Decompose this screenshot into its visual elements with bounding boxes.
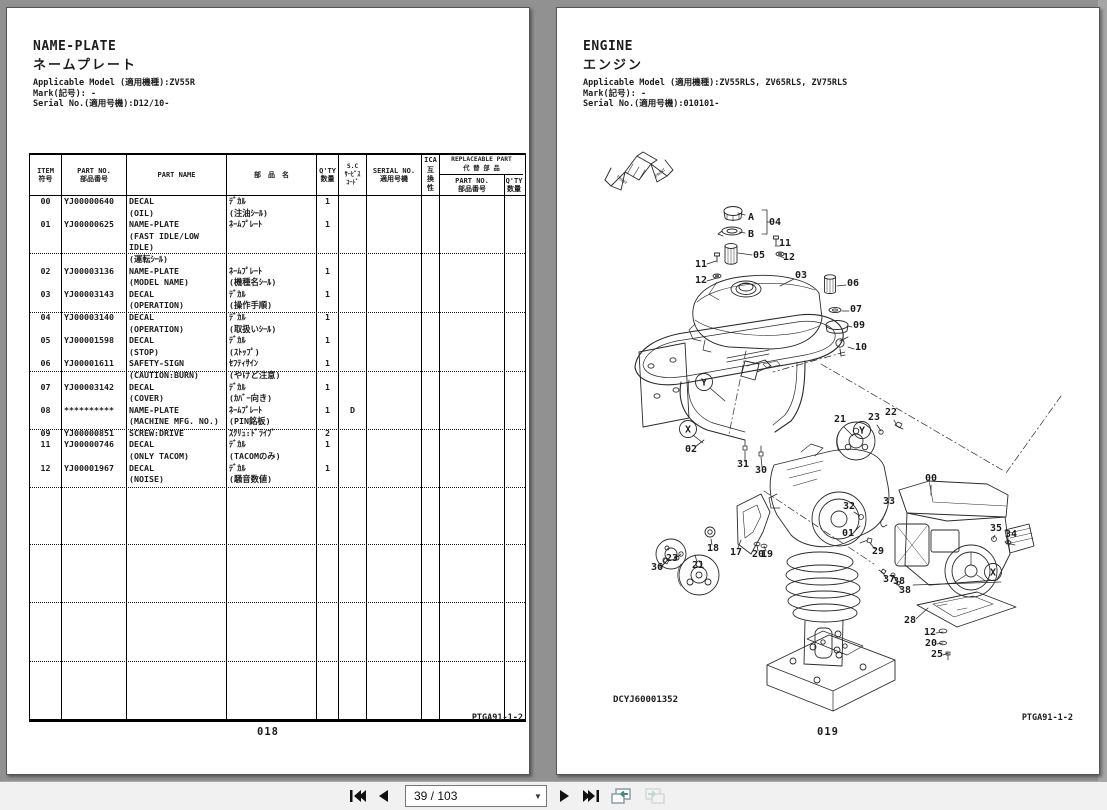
navigate-forward-button[interactable] bbox=[642, 786, 668, 806]
part-number-label: 29 bbox=[872, 546, 884, 557]
pdf-viewer-window: { "left_page": { "title_en": "NAME-PLATE… bbox=[0, 0, 1107, 809]
navigate-back-button[interactable] bbox=[608, 786, 634, 806]
part-number-label: 12 bbox=[783, 252, 795, 263]
table-row: 03YJ00003143DECAL (OPERATION)ﾃﾞｶﾙ (操作手順)… bbox=[30, 289, 525, 312]
next-page-button[interactable] bbox=[552, 786, 578, 806]
page-number: 018 bbox=[7, 726, 529, 738]
page-title-jp: ネームプレート bbox=[33, 54, 137, 73]
applicable-model-block: Applicable Model (適用機種):ZV55RLS, ZV65RLS… bbox=[583, 78, 847, 110]
first-page-button[interactable] bbox=[345, 786, 371, 806]
col-sc: S.C ｻｰﾋﾞｽ ｺｰﾄﾞ bbox=[339, 155, 367, 195]
part-number-label: 03 bbox=[795, 270, 807, 281]
circled-letter-x: X bbox=[985, 564, 1002, 581]
page-number-combobox[interactable]: 39 / 103 ▼ bbox=[405, 785, 547, 807]
coupling-right-shape bbox=[836, 422, 875, 460]
part-number-label: 10 bbox=[855, 342, 867, 353]
col-repl-part-no: PART NO. 部品番号 bbox=[440, 175, 505, 195]
document-canvas: NAME-PLATE ネームプレート Applicable Model (適用機… bbox=[0, 0, 1107, 781]
part-number-label: 18 bbox=[707, 543, 719, 554]
part-number-label: 12 bbox=[924, 627, 936, 638]
part-number-label: 06 bbox=[847, 278, 859, 289]
svg-text:Y: Y bbox=[859, 426, 865, 437]
part-number-label: 09 bbox=[853, 320, 865, 331]
part-number-label: 04 bbox=[769, 217, 781, 228]
page-title: ENGINE bbox=[583, 39, 633, 54]
part-number-label: 00 bbox=[925, 473, 937, 484]
page-number: 019 bbox=[557, 726, 1099, 738]
part-number-label: 05 bbox=[753, 250, 765, 261]
part-number-label: 30 bbox=[755, 465, 767, 476]
part-number-label: 23 bbox=[868, 412, 880, 423]
part-number-label: 32 bbox=[843, 501, 855, 512]
part-number-label: 17 bbox=[730, 547, 742, 558]
viewer-toolbar: 39 / 103 ▼ bbox=[0, 781, 1107, 810]
part-number-label: 11 bbox=[779, 238, 791, 249]
fastener-shapes bbox=[660, 422, 1015, 660]
circled-letter-x: X bbox=[680, 421, 697, 438]
col-ica: ICA 互 換 性 bbox=[422, 155, 440, 195]
skid-plate-shape bbox=[917, 592, 1016, 627]
part-number-label: 38 bbox=[899, 585, 911, 596]
page-title: NAME-PLATE bbox=[33, 39, 116, 54]
doc-code: PTGA91-1-2 bbox=[472, 713, 523, 723]
part-number-label: 11 bbox=[695, 259, 707, 270]
page-018: NAME-PLATE ネームプレート Applicable Model (適用機… bbox=[6, 7, 530, 775]
svg-text:Y: Y bbox=[701, 378, 707, 389]
part-number-label: 25 bbox=[931, 649, 943, 660]
table-row: 00YJ00000640DECAL (OIL)ﾃﾞｶﾙ (注油ｼｰﾙ)1 bbox=[30, 196, 525, 219]
part-number-label: B bbox=[748, 229, 754, 240]
table-row: 02YJ00003136NAME-PLATE (MODEL NAME)ﾈｰﾑﾌﾟ… bbox=[30, 266, 525, 289]
fuel-filter-cock-shapes bbox=[825, 275, 849, 356]
table-row: 04YJ00003140DECAL (OPERATION)ﾃﾞｶﾙ (取扱いｼｰ… bbox=[30, 312, 525, 335]
table-row: 08**********NAME-PLATE (MACHINE MFG. NO.… bbox=[30, 405, 525, 428]
col-serial-no: SERIAL NO. 適用号機 bbox=[367, 155, 422, 195]
part-number-label: 36 bbox=[651, 562, 663, 573]
crankcase-shape bbox=[769, 444, 889, 547]
figure-code: DCYJ60001352 bbox=[613, 695, 678, 705]
part-number-label: 28 bbox=[904, 615, 916, 626]
table-row: 01YJ00000625NAME-PLATE (FAST IDLE/LOW ID… bbox=[30, 219, 525, 265]
fuel-tank-shape bbox=[689, 275, 822, 352]
part-number-label: 20 bbox=[925, 638, 937, 649]
part-number-label: 19 bbox=[761, 549, 773, 560]
fuel-cap-shape bbox=[718, 207, 771, 237]
svg-text:X: X bbox=[990, 568, 996, 579]
part-number-label: 21 bbox=[834, 414, 846, 425]
page-indicator[interactable]: 39 / 103 bbox=[406, 789, 530, 803]
doc-code: PTGA91-1-2 bbox=[1022, 713, 1073, 723]
part-number-label: 21 bbox=[692, 560, 704, 571]
table-row: 07YJ00003142DECAL (COVER)ﾃﾞｶﾙ (ｶﾊﾞｰ向き)1 bbox=[30, 382, 525, 405]
col-replaceable-part: REPLACEABLE PART 代 替 部 品 PART NO. 部品番号 Q… bbox=[440, 155, 523, 195]
bellows-foot-shape bbox=[767, 552, 895, 711]
diagram-labels-layer: A04B051112031112060709100231302123223201… bbox=[651, 212, 1017, 660]
handle-frame-shape bbox=[635, 314, 843, 440]
applicable-model-block: Applicable Model (適用機種):ZV55R Mark(記号): … bbox=[33, 78, 195, 110]
circled-letter-y: Y bbox=[696, 374, 713, 391]
last-page-button[interactable] bbox=[578, 786, 604, 806]
part-number-label: 01 bbox=[842, 528, 854, 539]
table-row: 11YJ00000746DECAL (ONLY TACOM)ﾃﾞｶﾙ (TACO… bbox=[30, 439, 525, 462]
part-number-label: 23 bbox=[666, 553, 678, 564]
table-row: 06YJ00001611SAFETY-SIGN (CAUTION:BURN)ｾﾌ… bbox=[30, 358, 525, 381]
fuel-strainer-shape bbox=[713, 236, 784, 278]
front-orientation-icon: FRONT FRONT bbox=[605, 152, 673, 190]
part-number-label: 34 bbox=[1005, 529, 1017, 540]
part-number-label: 07 bbox=[850, 304, 862, 315]
col-item: ITEM 符号 bbox=[30, 155, 62, 195]
col-repl-qty: Q'TY 数量 bbox=[505, 175, 523, 195]
dropdown-arrow-icon[interactable]: ▼ bbox=[530, 792, 546, 801]
parts-table-header: ITEM 符号 PART NO. 部品番号 PART NAME 部 品 名 Q'… bbox=[30, 155, 525, 196]
part-number-label: 12 bbox=[695, 275, 707, 286]
col-part-no: PART NO. 部品番号 bbox=[62, 155, 127, 195]
col-qty: Q'TY 数量 bbox=[317, 155, 339, 195]
col-part-name: PART NAME bbox=[127, 155, 227, 195]
part-number-label: 33 bbox=[883, 496, 895, 507]
circled-letter-y: Y bbox=[854, 422, 871, 439]
previous-page-button[interactable] bbox=[370, 786, 396, 806]
page-title-jp: エンジン bbox=[583, 54, 643, 73]
table-row: 05YJ00001598DECAL (STOP)ﾃﾞｶﾙ (ｽﾄｯﾌﾟ)1 bbox=[30, 335, 525, 358]
svg-text:FRONT: FRONT bbox=[654, 167, 667, 179]
page-019: ENGINE エンジン Applicable Model (適用機種):ZV55… bbox=[556, 7, 1100, 775]
parts-table-body: 00YJ00000640DECAL (OIL)ﾃﾞｶﾙ (注油ｼｰﾙ)101YJ… bbox=[30, 196, 525, 721]
part-number-label: A bbox=[748, 212, 754, 223]
engine-exploded-diagram: FRONT FRONT bbox=[577, 134, 1087, 719]
parts-table: ITEM 符号 PART NO. 部品番号 PART NAME 部 品 名 Q'… bbox=[29, 153, 526, 722]
part-number-label: 02 bbox=[685, 444, 697, 455]
col-part-name-jp: 部 品 名 bbox=[227, 155, 317, 195]
table-row: 12YJ00001967DECAL (NOISE)ﾃﾞｶﾙ (騒音数値)1 bbox=[30, 463, 525, 486]
part-number-label: 31 bbox=[737, 459, 749, 470]
part-number-label: 35 bbox=[990, 523, 1002, 534]
svg-text:X: X bbox=[685, 425, 691, 436]
part-number-label: 22 bbox=[885, 407, 897, 418]
